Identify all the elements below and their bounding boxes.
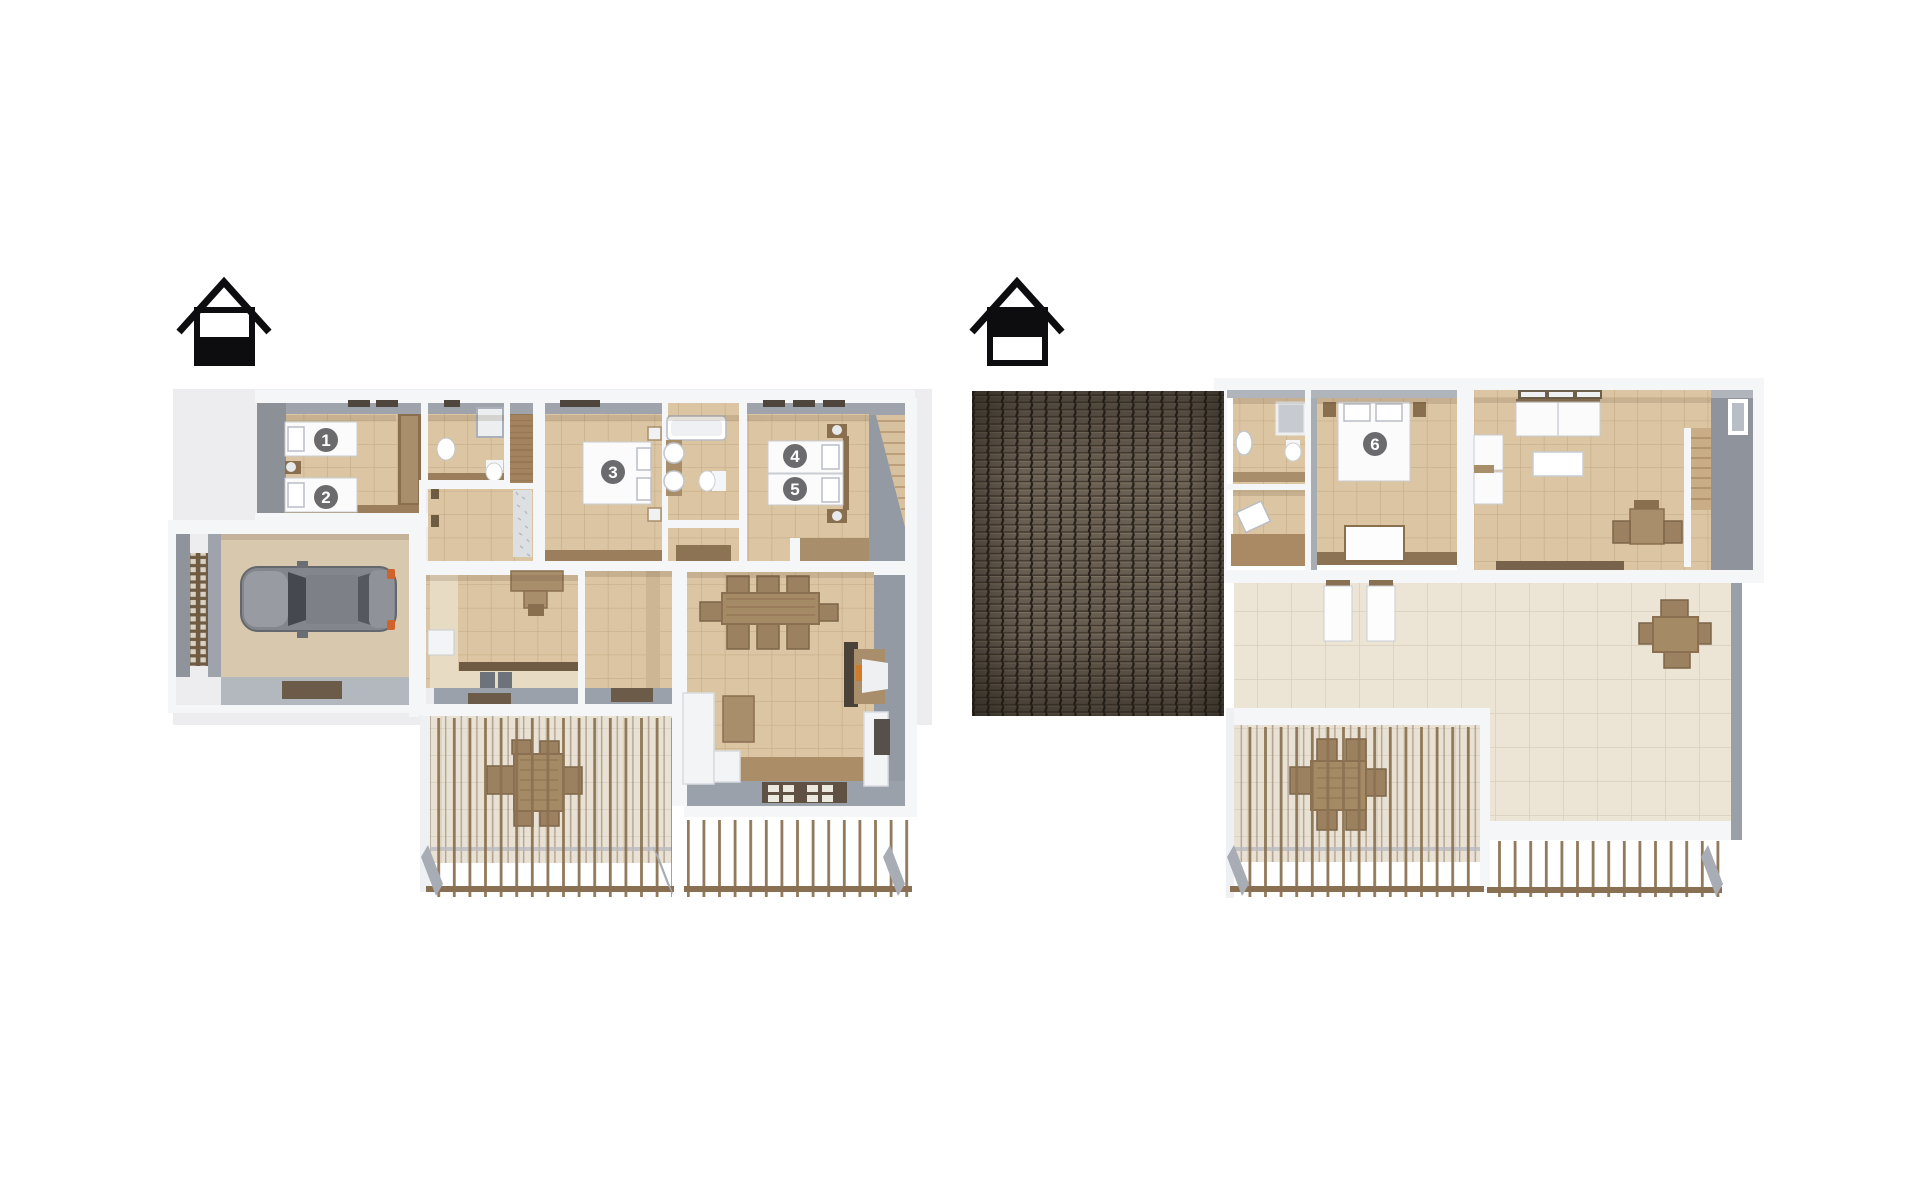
svg-text:3: 3	[608, 463, 617, 482]
svg-text:5: 5	[790, 480, 799, 499]
svg-text:1: 1	[321, 431, 330, 450]
svg-text:4: 4	[790, 447, 800, 466]
svg-text:2: 2	[321, 488, 330, 507]
svg-text:6: 6	[1370, 435, 1379, 454]
